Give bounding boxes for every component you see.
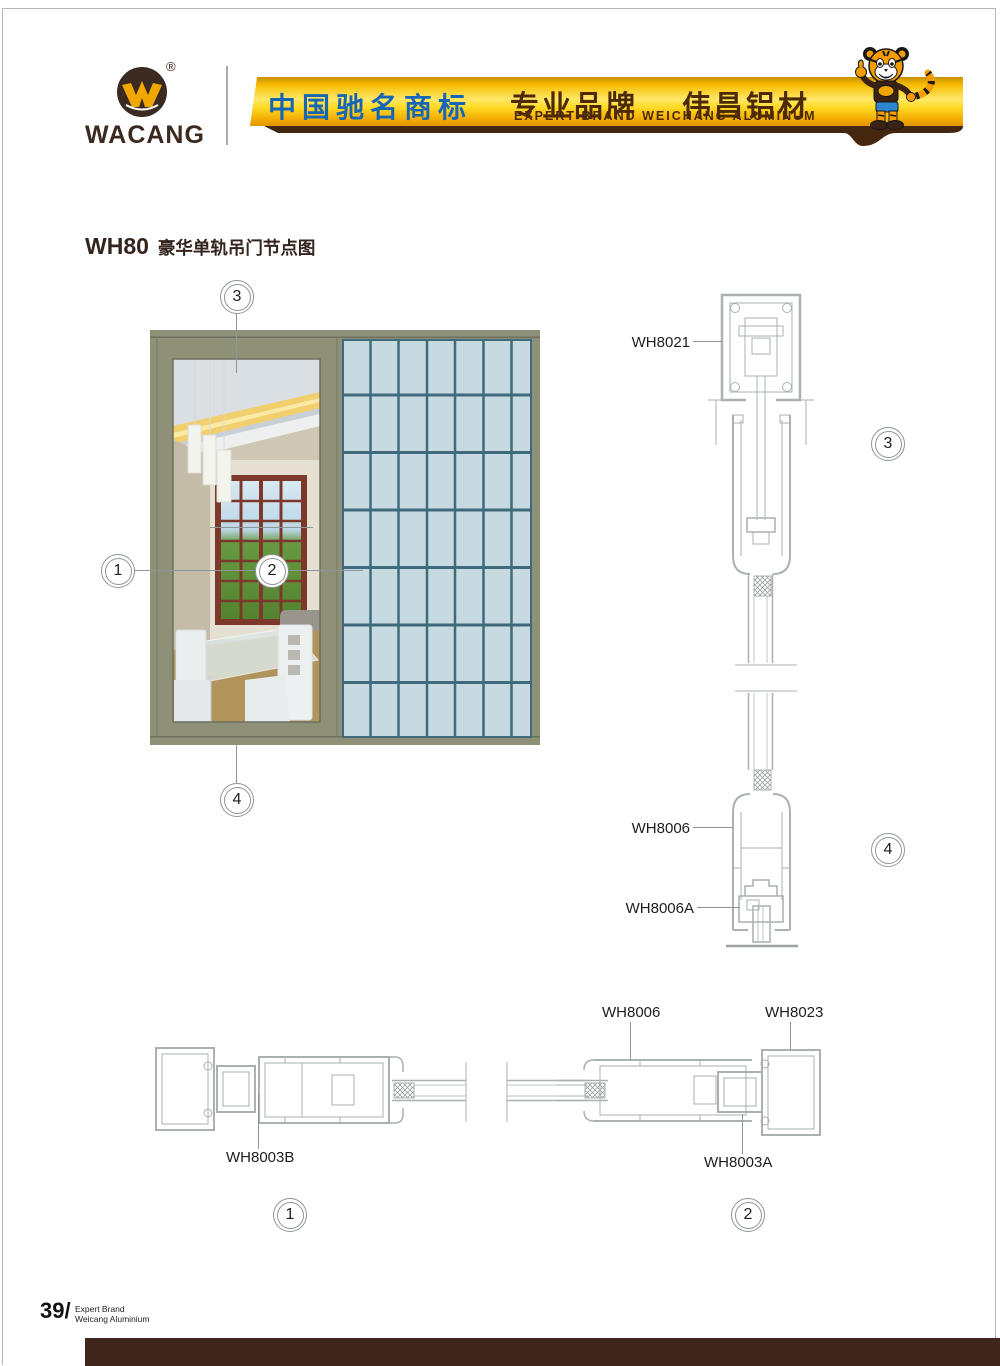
callout-4-circle: 4 <box>220 783 254 817</box>
title-code: WH80 <box>85 233 149 260</box>
label-wh8006-top: WH8006 <box>590 820 690 837</box>
label-wh8023: WH8023 <box>765 1004 823 1021</box>
title-zh: 豪华单轨吊门节点图 <box>158 235 316 260</box>
callout-1-circle: 1 <box>101 554 135 588</box>
label-wh8003a: WH8003A <box>704 1154 772 1171</box>
banner-en-text: EXPERT BRAND WEICHANG ALUMINUM <box>514 109 817 123</box>
footer-bar <box>85 1338 1000 1366</box>
leader-wh8003a <box>742 1114 743 1154</box>
footer-tagline-2: Weicang Aluminium <box>75 1314 150 1324</box>
callout-3-circle: 3 <box>220 280 254 314</box>
callout-2-circle: 2 <box>255 554 289 588</box>
leader-wh8006a <box>697 907 740 908</box>
banner-cn-left-text: 中国驰名商标 <box>268 86 472 126</box>
plan-section-right-drawing <box>556 1045 824 1137</box>
leader-line-2 <box>289 570 363 571</box>
header-divider <box>226 66 228 145</box>
leader-line-2b <box>210 527 313 528</box>
section-2-circle: 2 <box>731 1198 765 1232</box>
leader-wh8006-plan <box>630 1022 631 1060</box>
leader-line-1 <box>135 570 270 571</box>
tiger-mascot-icon <box>838 44 938 136</box>
leader-line-4 <box>236 745 237 783</box>
plan-section-left-drawing <box>150 1042 590 1134</box>
leader-wh8023 <box>790 1022 791 1050</box>
vertical-section-drawing <box>690 288 830 960</box>
catalog-page: ® WACANG 中国驰名商标 专业品牌 伟昌铝材 EXPERT BRAND W… <box>0 0 1000 1366</box>
wacang-logo-icon <box>108 58 188 124</box>
label-wh8006-plan: WH8006 <box>602 1004 660 1021</box>
section-3-circle: 3 <box>871 427 905 461</box>
label-wh8006a: WH8006A <box>586 900 694 917</box>
section-1-circle: 1 <box>273 1198 307 1232</box>
sliding-door-photo <box>150 330 540 745</box>
footer-tagline: Expert Brand Weicang Aluminium <box>75 1304 150 1324</box>
registered-mark: ® <box>166 59 176 74</box>
section-4-circle: 4 <box>871 833 905 867</box>
footer-tagline-1: Expert Brand <box>75 1304 150 1314</box>
label-wh8021: WH8021 <box>590 334 690 351</box>
brand-name: WACANG <box>76 121 214 150</box>
leader-line-3 <box>236 314 237 373</box>
leader-wh8006-top <box>693 827 733 828</box>
leader-wh8003b <box>258 1094 259 1149</box>
page-title: WH80 豪华单轨吊门节点图 <box>85 233 315 260</box>
page-number: 39/ <box>40 1298 71 1324</box>
label-wh8003b: WH8003B <box>226 1149 294 1166</box>
leader-wh8021 <box>693 341 722 342</box>
